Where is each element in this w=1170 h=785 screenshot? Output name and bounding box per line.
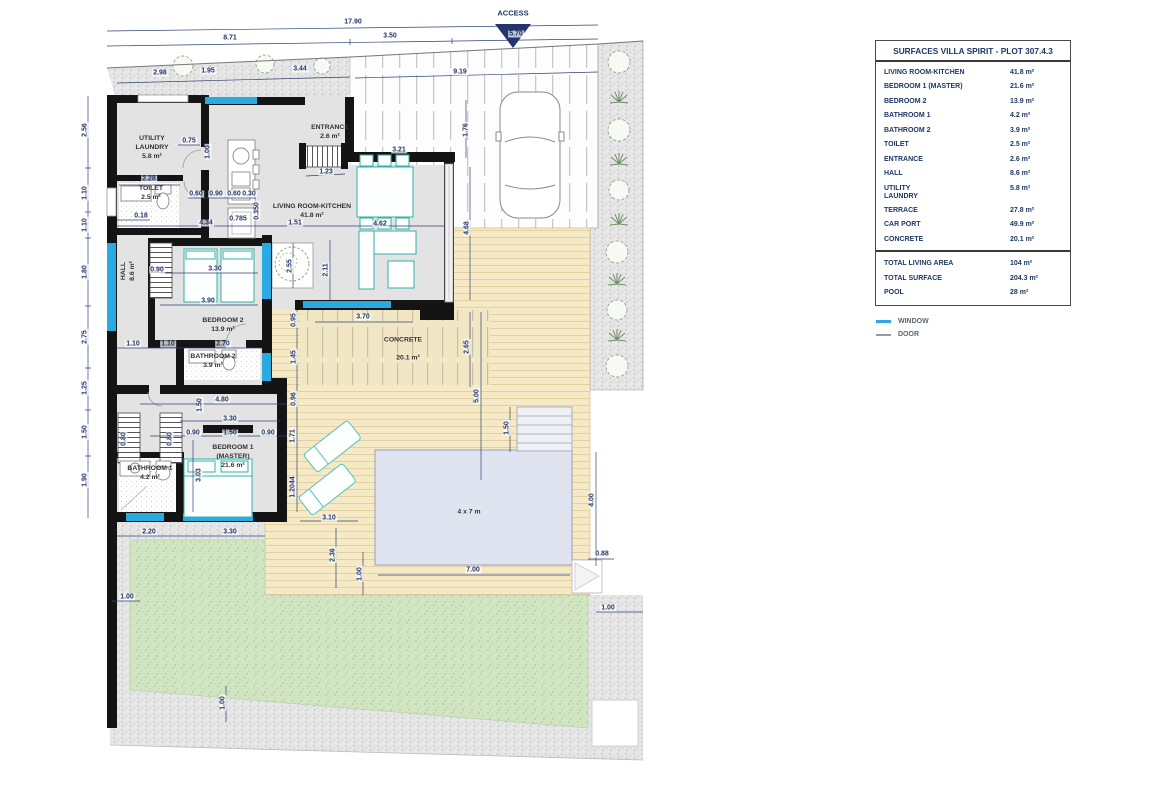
- window-swatch-icon: [876, 320, 891, 323]
- surface-value: 104 m²: [1010, 260, 1062, 268]
- bedroom1-bed: [184, 459, 252, 517]
- surface-row: CONCRETE20.1 m²: [884, 236, 1062, 244]
- surface-row: BATHROOM 14.2 m²: [884, 112, 1062, 120]
- surface-label: TOILET: [884, 141, 1010, 149]
- utility-window: [138, 95, 188, 102]
- legend-window-label: WINDOW: [898, 318, 929, 325]
- surface-value: 2.5 m²: [1010, 141, 1062, 149]
- surface-value: 41.8 m²: [1010, 69, 1062, 77]
- surface-label: BATHROOM 1: [884, 112, 1010, 120]
- surface-row: ENTRANCE2.6 m²: [884, 156, 1062, 164]
- access-label: ACCESS: [497, 9, 528, 18]
- door-swatch-icon: [876, 334, 891, 336]
- surface-row: POOL28 m²: [884, 289, 1062, 297]
- legend: WINDOW DOOR: [876, 318, 929, 344]
- surface-label: BEDROOM 2: [884, 98, 1010, 106]
- surface-value: 5.8 m²: [1010, 185, 1062, 201]
- pool: [375, 450, 572, 565]
- hall-wardrobe: [150, 243, 172, 298]
- surface-row: TOTAL LIVING AREA104 m²: [884, 260, 1062, 268]
- surface-value: 8.6 m²: [1010, 170, 1062, 178]
- surface-label: CAR PORT: [884, 221, 1010, 229]
- surface-row: TOILET2.5 m²: [884, 141, 1062, 149]
- legend-door-label: DOOR: [898, 331, 919, 338]
- surface-label: POOL: [884, 289, 1010, 297]
- surface-value: 27.8 m²: [1010, 207, 1062, 215]
- surface-value: 20.1 m²: [1010, 236, 1062, 244]
- surfaces-table: SURFACES VILLA SPIRIT - PLOT 307.4.3 LIV…: [875, 40, 1071, 306]
- surface-label: LIVING ROOM-KITCHEN: [884, 69, 1010, 77]
- bedroom2-window: [262, 243, 271, 299]
- surface-label: CONCRETE: [884, 236, 1010, 244]
- surface-label: BATHROOM 2: [884, 127, 1010, 135]
- floor-plan-canvas: 17.908.713.505.702.981.953.449.192.561.1…: [0, 0, 1170, 785]
- bathroom2-window: [262, 353, 271, 381]
- kitchen-island: [228, 140, 259, 238]
- corner-utility-box: [592, 700, 638, 746]
- concrete-area: [300, 310, 490, 385]
- surface-row: UTILITY LAUNDRY5.8 m²: [884, 185, 1062, 201]
- surface-label: TOTAL LIVING AREA: [884, 260, 1010, 268]
- surface-label: TERRACE: [884, 207, 1010, 215]
- tree-icon: [275, 247, 309, 281]
- surface-value: 28 m²: [1010, 289, 1062, 297]
- legend-door-item: DOOR: [876, 331, 929, 338]
- bathroom1-window: [126, 513, 164, 521]
- hall-window: [107, 243, 116, 331]
- surface-label: HALL: [884, 170, 1010, 178]
- bedroom1-wardrobe: [118, 413, 140, 463]
- surface-row: BEDROOM 1 (MASTER)21.6 m²: [884, 83, 1062, 91]
- surfaces-table-title: SURFACES VILLA SPIRIT - PLOT 307.4.3: [876, 41, 1070, 62]
- dining-table: [357, 155, 413, 229]
- surface-label: ENTRANCE: [884, 156, 1010, 164]
- surface-value: 13.9 m²: [1010, 98, 1062, 106]
- surface-row: TOTAL SURFACE204.3 m²: [884, 275, 1062, 283]
- car-icon: [496, 92, 564, 218]
- surface-value: 204.3 m²: [1010, 275, 1062, 283]
- surface-value: 21.6 m²: [1010, 83, 1062, 91]
- surface-row: BEDROOM 213.9 m²: [884, 98, 1062, 106]
- bedroom1-wardrobe: [160, 413, 182, 463]
- living-slider-window: [303, 301, 391, 308]
- kitchen-window: [205, 97, 257, 104]
- table-divider: [876, 250, 1070, 252]
- surface-label: BEDROOM 1 (MASTER): [884, 83, 1010, 91]
- entrance-steps: [302, 146, 346, 167]
- toilet-window: [107, 188, 116, 216]
- surface-row: LIVING ROOM-KITCHEN41.8 m²: [884, 69, 1062, 77]
- surface-row: BATHROOM 23.9 m²: [884, 127, 1062, 135]
- surface-row: TERRACE27.8 m²: [884, 207, 1062, 215]
- pool-stairs: [517, 407, 572, 451]
- surface-row: HALL8.6 m²: [884, 170, 1062, 178]
- surface-value: 2.6 m²: [1010, 156, 1062, 164]
- legend-window-item: WINDOW: [876, 318, 929, 325]
- surface-value: 4.2 m²: [1010, 112, 1062, 120]
- surface-label: UTILITY LAUNDRY: [884, 185, 1010, 201]
- surface-value: 3.9 m²: [1010, 127, 1062, 135]
- surfaces-totals: TOTAL LIVING AREA104 m²TOTAL SURFACE204.…: [884, 260, 1062, 297]
- surface-value: 49.9 m²: [1010, 221, 1062, 229]
- surface-label: TOTAL SURFACE: [884, 275, 1010, 283]
- access-arrow-icon: [495, 24, 531, 48]
- surface-row: CAR PORT49.9 m²: [884, 221, 1062, 229]
- surfaces-rows: LIVING ROOM-KITCHEN41.8 m²BEDROOM 1 (MAS…: [884, 69, 1062, 244]
